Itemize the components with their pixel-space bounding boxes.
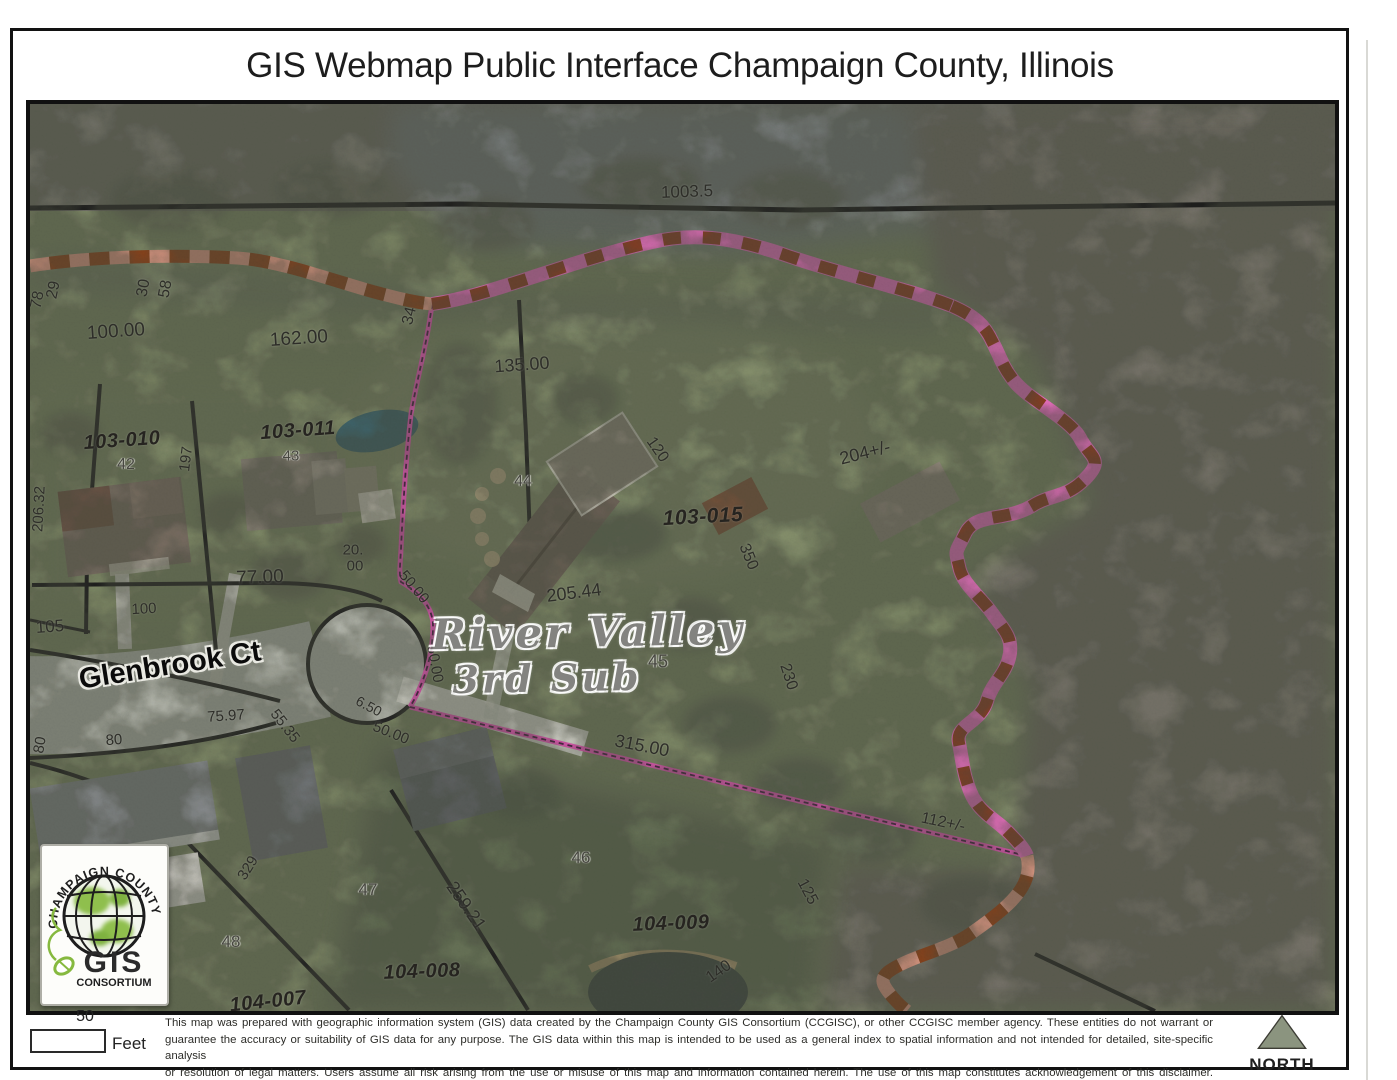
scale-unit: Feet — [112, 1034, 146, 1054]
logo-main-text: GIS — [84, 946, 145, 979]
gis-consortium-logo: CHAMPAIGN COUNTY GIS CONSORTIUM — [40, 844, 169, 1006]
scale-value: 50 — [48, 1008, 122, 1026]
aerial-map: 1003.529783058100.00162.0034135.00103-01… — [26, 100, 1339, 1015]
disclaimer-line: This map was prepared with geographic in… — [165, 1015, 1213, 1032]
logo-graphic: CHAMPAIGN COUNTY GIS CONSORTIUM — [42, 846, 167, 1004]
scan-artifact — [1366, 40, 1368, 1080]
north-arrow: NORTH — [1247, 1012, 1317, 1070]
page-title: GIS Webmap Public Interface Champaign Co… — [20, 46, 1340, 86]
logo-sub-text: CONSORTIUM — [76, 977, 151, 989]
north-label: NORTH — [1247, 1055, 1317, 1075]
scanned-map-page: GIS Webmap Public Interface Champaign Co… — [0, 0, 1397, 1080]
photo-texture — [30, 104, 1335, 1011]
disclaimer: This map was prepared with geographic in… — [165, 1015, 1213, 1080]
disclaimer-line: or resolution of legal matters. Users as… — [165, 1065, 1213, 1080]
north-arrow-icon — [1252, 1012, 1312, 1052]
aerial-map-graphic — [30, 104, 1335, 1011]
scale-box — [30, 1029, 106, 1053]
disclaimer-line: guarantee the accuracy or suitability of… — [165, 1032, 1213, 1065]
